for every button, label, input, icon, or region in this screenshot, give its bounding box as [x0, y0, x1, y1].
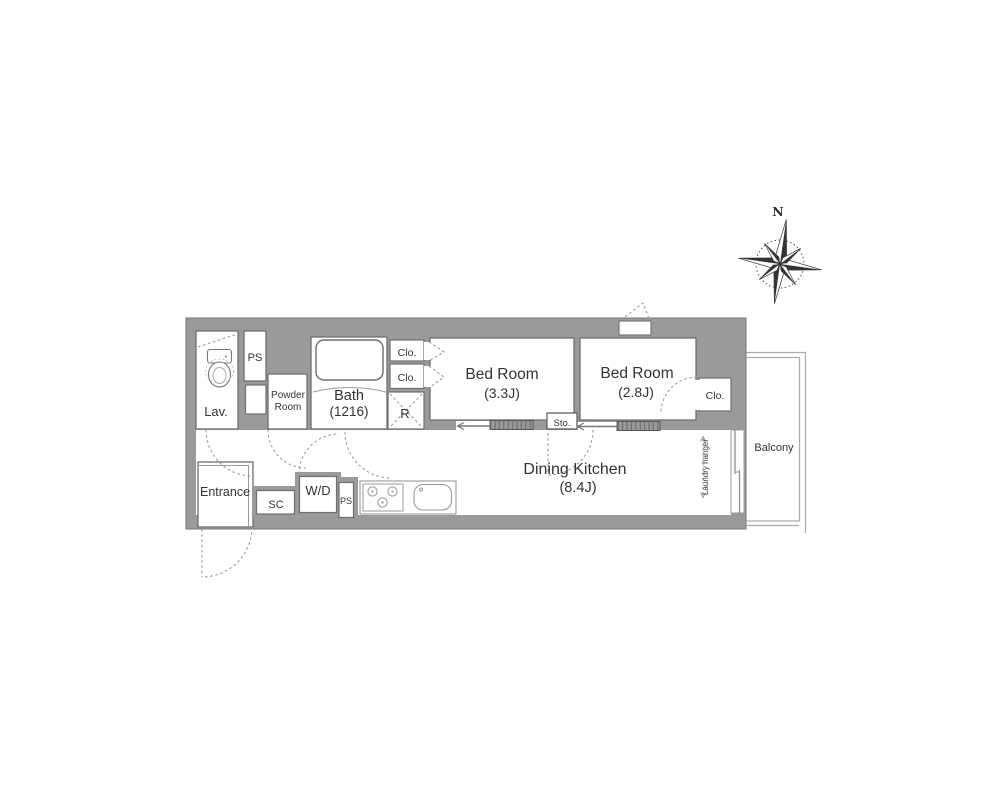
label-balcony: Balcony [754, 442, 794, 454]
floor-plan-page: N Lav. PS Powder Room Bath (1216) Clo. C… [0, 0, 999, 801]
label-washer-dryer: W/D [305, 483, 330, 498]
bathtub [316, 340, 383, 380]
label-bedroom-1: Bed Room [465, 366, 538, 383]
label-entrance: Entrance [200, 485, 250, 499]
window-bedroom-1 [490, 421, 533, 430]
label-closet-a: Clo. [398, 347, 417, 359]
opening-closet-b [424, 366, 431, 387]
burner-dot [381, 501, 383, 503]
opening-closet-right [695, 380, 701, 410]
compass-rose: N [733, 204, 828, 309]
balcony-inner-line [746, 358, 800, 522]
label-storage: Sto. [554, 418, 571, 429]
label-bedroom-2-size: (2.8J) [618, 384, 654, 400]
label-laundry-hanger: Laundry hanger [701, 439, 710, 495]
window-bedroom-2 [617, 422, 660, 431]
label-shoe-closet: SC [268, 499, 283, 511]
burner-dot [371, 490, 373, 492]
label-ps-top: PS [248, 352, 263, 364]
opening-closet-a [424, 342, 431, 360]
washbasin-box [246, 385, 267, 414]
label-ps-bottom: PS [340, 496, 352, 506]
label-dining-kitchen-size: (8.4J) [559, 480, 596, 496]
label-lav: Lav. [204, 404, 228, 419]
label-powder-line1: Powder [271, 390, 306, 401]
label-dining-kitchen: Dining Kitchen [523, 461, 626, 478]
label-closet-right: Clo. [706, 390, 725, 402]
burner-dot [391, 490, 393, 492]
bay-window-sash [621, 303, 650, 320]
toilet-button [225, 355, 227, 357]
label-bath-size: (1216) [329, 404, 368, 419]
floor-plan-drawing: N Lav. PS Powder Room Bath (1216) Clo. C… [0, 0, 999, 801]
label-bedroom-2: Bed Room [600, 365, 673, 382]
label-refrigerator: R [400, 406, 409, 421]
label-closet-b: Clo. [398, 372, 417, 384]
balcony-sliding-door [731, 430, 744, 513]
label-bedroom-1-size: (3.3J) [484, 385, 520, 401]
bay-window [619, 321, 651, 335]
compass-north-label: N [772, 204, 783, 219]
label-bath: Bath [334, 388, 364, 404]
entrance-door-arc [202, 527, 252, 577]
toilet-icon [206, 350, 234, 388]
label-powder-line2: Room [275, 402, 302, 413]
kitchen-counter [360, 481, 456, 514]
